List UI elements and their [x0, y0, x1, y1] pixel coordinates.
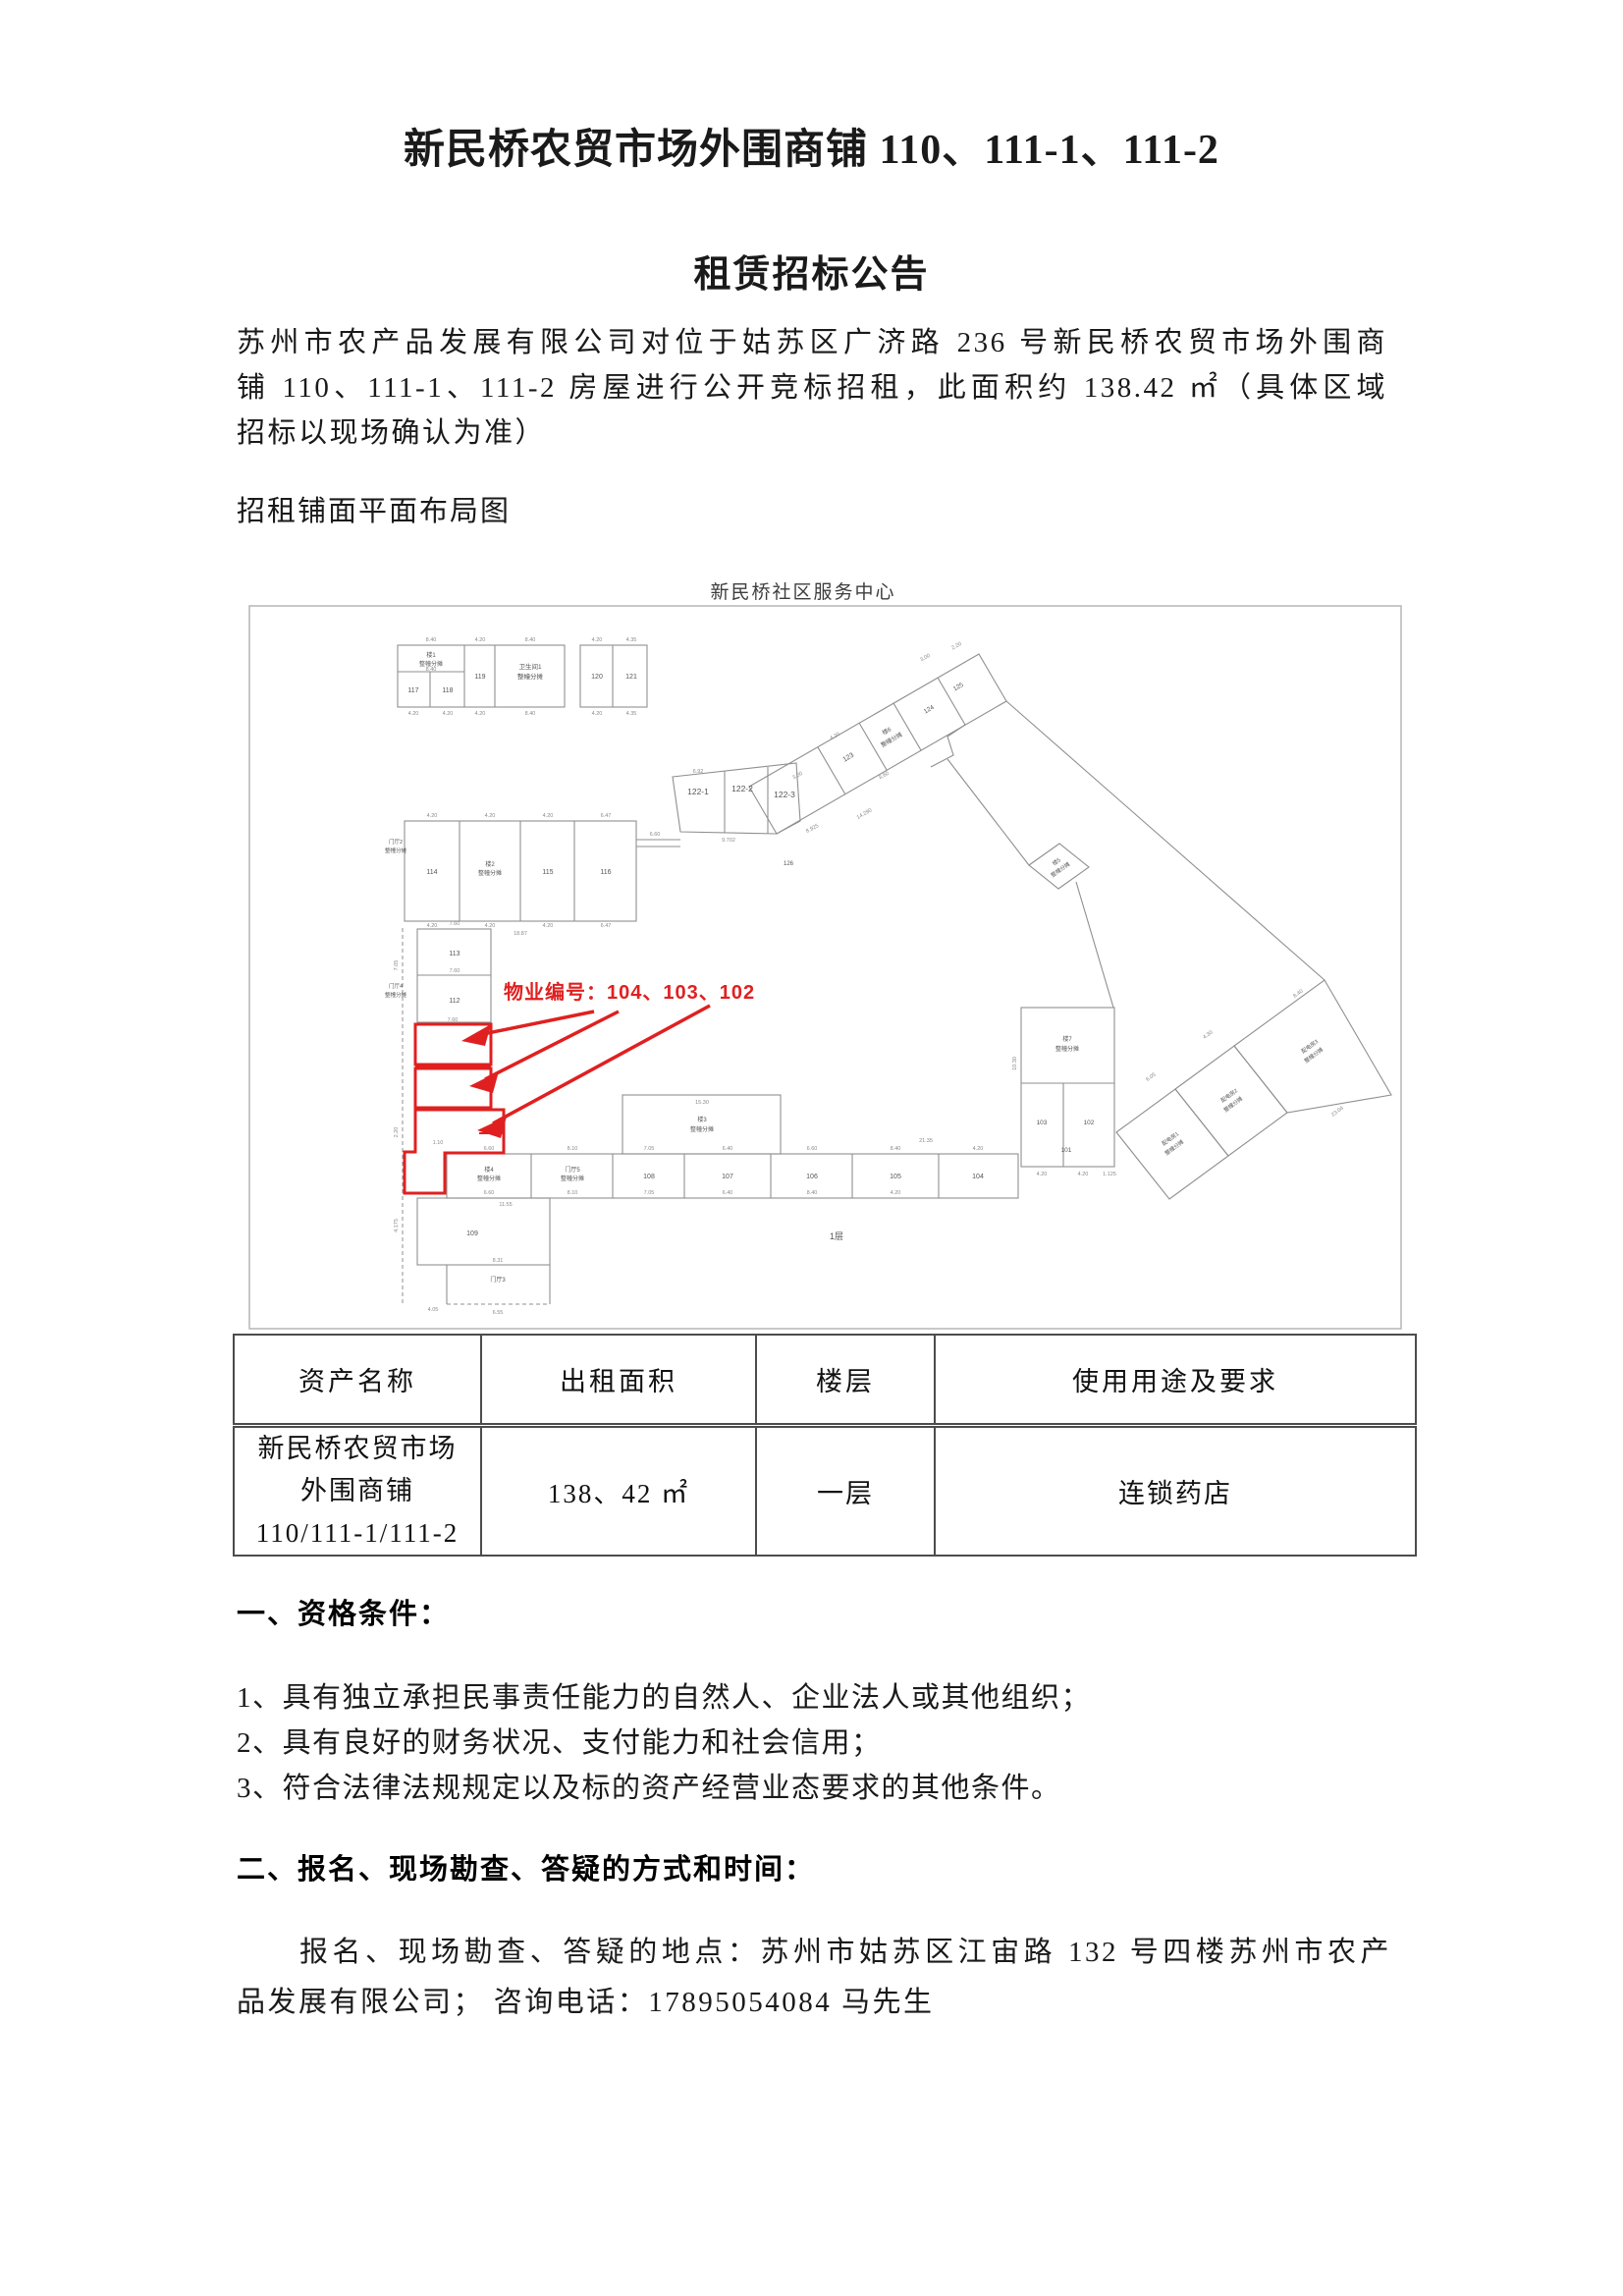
dimension-label: 4.20 [1078, 1172, 1089, 1177]
dimension-label: 4.20 [592, 711, 603, 717]
room-label: 卫生间1 [518, 662, 542, 671]
room-label: 整幢分摊 [385, 847, 407, 854]
dimension-label: 6.40 [723, 1190, 733, 1196]
col-header-area: 出租面积 [481, 1335, 756, 1425]
room-label: 119 [474, 674, 485, 681]
plan-walls [398, 645, 1391, 1304]
floor-plan-figure: 新民桥社区服务中心 [248, 582, 1402, 1331]
dimension-label: 4.20 [1037, 1172, 1048, 1177]
property-id-annotation: 物业编号：104、103、102 [504, 980, 755, 1004]
dimension-label: 10.30 [1012, 1057, 1018, 1070]
dimension-label: 4.20 [408, 711, 419, 717]
room-label: 102 [1084, 1120, 1095, 1126]
col-header-usage: 使用用途及要求 [935, 1335, 1416, 1425]
dimension-label: 8.10 [568, 1190, 578, 1196]
dimension-label: 8.40 [1292, 989, 1304, 1000]
asset-name-line: 110/111-1/111-2 [235, 1512, 480, 1555]
dimension-label: 6.60 [650, 832, 661, 838]
room-label: 整幢分摊 [690, 1125, 714, 1133]
table-row: 新民桥农贸市场 外围商铺 110/111-1/111-2 138、42 ㎡ 一层… [234, 1425, 1416, 1556]
room-label: 104 [972, 1174, 984, 1180]
section-2-heading: 二、报名、现场勘查、答疑的方式和时间： [237, 1846, 815, 1887]
room-label: 105 [890, 1174, 901, 1180]
room-label: 整幢分摊 [385, 991, 407, 999]
dimension-labels: 8.404.208.404.204.204.208.408.404.204.35… [394, 637, 1345, 1316]
room-label: 116 [600, 869, 611, 876]
room-label: 楼7 [1062, 1035, 1072, 1043]
room-label: 整幢分摊 [477, 1175, 501, 1182]
room-label: 106 [806, 1174, 818, 1180]
room-label: 109 [466, 1230, 478, 1237]
room-label: 126 [784, 861, 794, 867]
plan-title: 新民桥社区服务中心 [710, 582, 895, 603]
dimension-label: 4.20 [485, 813, 496, 819]
dimension-label: 7.60 [448, 1017, 459, 1023]
dimension-label: 8.40 [525, 637, 536, 643]
plan-caption: 招租铺面平面布局图 [237, 488, 511, 529]
intro-line: 苏州市农产品发展有限公司对位于姑苏区广济路 236 号新民桥农贸市场外围商 [237, 320, 1387, 365]
dimension-label: 6.60 [484, 1190, 495, 1196]
dimension-label: 8.40 [807, 1190, 818, 1196]
dimension-label: 7.60 [450, 968, 460, 974]
registration-line: 品发展有限公司； 咨询电话：17895054084 马先生 [237, 1978, 1391, 2028]
dimension-label: 4.35 [626, 711, 637, 717]
dimension-label: 15.30 [695, 1100, 709, 1106]
dimension-label: 6.92 [693, 769, 704, 775]
asset-name-line: 外围商铺 [235, 1470, 480, 1512]
room-label: 楼5 [1051, 856, 1062, 867]
dimension-label: 4.20 [891, 1190, 901, 1196]
dimension-label: 4.20 [543, 813, 554, 819]
room-label: 楼1 [426, 651, 436, 659]
dimension-label: 8.31 [493, 1258, 504, 1264]
dimension-label: 8.40 [426, 667, 437, 673]
asset-name-line: 新民桥农贸市场 [235, 1428, 480, 1470]
dimension-label: 4.20 [475, 711, 486, 717]
dimension-label: 18.87 [514, 931, 527, 937]
cell-area: 138、42 ㎡ [481, 1425, 756, 1556]
col-header-floor: 楼层 [756, 1335, 935, 1425]
dimension-label: 8.40 [525, 711, 536, 717]
dimension-label: 4.05 [428, 1307, 439, 1313]
page-subtitle: 租赁招标公告 [0, 244, 1623, 298]
intro-line: 铺 110、111-1、111-2 房屋进行公开竞标招租，此面积约 138.42… [237, 365, 1387, 410]
dimension-label: 8.40 [891, 1146, 901, 1152]
dimension-label: 4.35 [626, 637, 637, 643]
registration-line: 报名、现场勘查、答疑的地点：苏州市姑苏区江宙路 132 号四楼苏州市农产 [237, 1928, 1391, 1978]
dimension-label: 4.20 [485, 923, 496, 929]
floor-plan: 新民桥社区服务中心 [248, 582, 1402, 1331]
dimension-label: 4.20 [973, 1146, 984, 1152]
arrow-head-icon [461, 1024, 491, 1046]
dimension-label: 8.60 [878, 771, 890, 782]
dimension-label: 7.60 [450, 921, 460, 927]
room-label: 门厅4 [389, 982, 403, 990]
dimension-label: 4.20 [427, 813, 438, 819]
room-label: 楼4 [484, 1166, 494, 1174]
room-label: 121 [625, 674, 637, 681]
dimension-label: 6.60 [807, 1146, 818, 1152]
annotation-arrows [461, 1006, 710, 1138]
qualification-list: 1、具有独立承担民事责任能力的自然人、企业法人或其他组织； 2、具有良好的财务状… [237, 1675, 1091, 1811]
dimension-label: 11.55 [499, 1202, 512, 1208]
room-label: 114 [426, 869, 437, 876]
dimension-label: 4.30 [1202, 1030, 1214, 1041]
room-label: 122-1 [687, 787, 709, 796]
room-label: 125 [952, 682, 965, 693]
cell-asset-name: 新民桥农贸市场 外围商铺 110/111-1/111-2 [234, 1425, 481, 1556]
room-label: 118 [442, 687, 453, 694]
room-label: 门厅3 [490, 1276, 506, 1284]
room-label: 107 [722, 1174, 733, 1180]
cell-floor: 一层 [756, 1425, 935, 1556]
table-header-row: 资产名称 出租面积 楼层 使用用途及要求 [234, 1335, 1416, 1425]
intro-paragraph: 苏州市农产品发展有限公司对位于姑苏区广济路 236 号新民桥农贸市场外围商 铺 … [237, 320, 1387, 456]
intro-line: 招标以现场确认为准） [237, 410, 1387, 456]
col-header-asset-name: 资产名称 [234, 1335, 481, 1425]
room-label: 117 [407, 687, 418, 694]
dimension-label: 4.20 [475, 637, 486, 643]
room-label: 整幢分摊 [517, 672, 544, 681]
dimension-label: 6.60 [484, 1146, 495, 1152]
room-label: 楼6 [881, 725, 893, 737]
room-label: 楼2 [485, 860, 495, 868]
dimension-label: 4.20 [829, 732, 840, 742]
document-page: { "document": { "title": "新民桥农贸市场外围商铺 11… [0, 0, 1623, 2296]
room-label: 101 [1061, 1147, 1072, 1154]
dimension-label: 8.10 [568, 1146, 578, 1152]
dimension-label: 4.20 [592, 637, 603, 643]
dimension-label: 1.125 [1103, 1172, 1116, 1177]
dimension-label: 23.04 [1330, 1106, 1345, 1119]
dimension-label: 7.05 [644, 1190, 655, 1196]
room-label: 124 [923, 704, 936, 716]
dimension-label: 1.10 [433, 1140, 444, 1146]
room-label: 103 [1037, 1120, 1048, 1126]
room-label: 1层 [830, 1231, 843, 1241]
page-title: 新民桥农贸市场外围商铺 110、111-1、111-2 [0, 116, 1623, 176]
dimension-label: 4.20 [443, 711, 454, 717]
room-label: 115 [542, 869, 553, 876]
room-label: 整幢分摊 [561, 1175, 584, 1182]
cell-usage: 连锁药店 [935, 1425, 1416, 1556]
dimension-label: 6.47 [601, 813, 612, 819]
dimension-label: 2.20 [950, 641, 962, 652]
dimension-label: 4.20 [427, 923, 438, 929]
room-label: 整幢分摊 [1055, 1045, 1079, 1053]
dimension-label: 14.290 [856, 807, 874, 821]
room-label: 123 [841, 752, 855, 764]
room-label: 113 [449, 951, 460, 957]
list-item: 1、具有独立承担民事责任能力的自然人、企业法人或其他组织； [237, 1675, 1091, 1721]
room-label: 整幢分摊 [478, 869, 502, 877]
dimension-label: 9.702 [722, 838, 735, 844]
arrow-head-icon [469, 1071, 499, 1093]
dimension-label: 3.00 [919, 653, 931, 664]
dimension-label: 7.05 [394, 960, 400, 971]
list-item: 2、具有良好的财务状况、支付能力和社会信用； [237, 1721, 1091, 1766]
dimension-label: 4.20 [543, 923, 554, 929]
asset-table: 资产名称 出租面积 楼层 使用用途及要求 新民桥农贸市场 外围商铺 110/11… [233, 1334, 1417, 1557]
dimension-label: 8.40 [426, 637, 437, 643]
dimension-label: 6.05 [1145, 1072, 1157, 1083]
dimension-label: 7.05 [644, 1146, 655, 1152]
room-label: 122-2 [731, 784, 753, 793]
dimension-label: 8.925 [805, 823, 820, 835]
room-label: 122-3 [774, 790, 795, 799]
room-label: 楼3 [697, 1116, 707, 1123]
plan-border [249, 606, 1401, 1329]
dimension-label: 2.20 [394, 1127, 400, 1138]
room-label: 门厅2 [389, 838, 403, 846]
registration-paragraph: 报名、现场勘查、答疑的地点：苏州市姑苏区江宙路 132 号四楼苏州市农产 品发展… [237, 1928, 1391, 2028]
section-1-heading: 一、资格条件： [237, 1591, 450, 1632]
dimension-label: 4.175 [394, 1219, 400, 1232]
room-label: 120 [591, 674, 603, 681]
room-label: 门厅5 [565, 1166, 580, 1174]
dimension-label: 6.47 [601, 923, 612, 929]
dimension-label: 21.35 [919, 1138, 933, 1144]
list-item: 3、符合法律法规规定以及标的资产经营业态要求的其他条件。 [237, 1766, 1091, 1811]
dimension-label: 6.55 [493, 1310, 504, 1316]
room-label: 112 [449, 998, 460, 1005]
dimension-label: 6.40 [723, 1146, 733, 1152]
room-label: 108 [643, 1174, 655, 1180]
